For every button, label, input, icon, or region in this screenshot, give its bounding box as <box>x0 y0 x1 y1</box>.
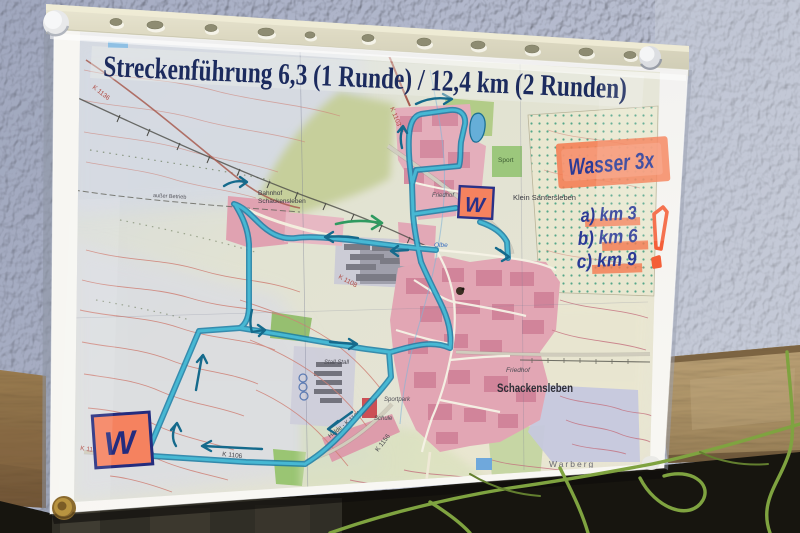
svg-text:Friedhof: Friedhof <box>506 367 531 374</box>
svg-text:Bahnhof: Bahnhof <box>258 190 282 197</box>
svg-text:W: W <box>464 193 487 217</box>
svg-text:Friedhof: Friedhof <box>432 193 455 199</box>
svg-text:Warberg: Warberg <box>549 459 595 469</box>
svg-text:Sport: Sport <box>498 157 514 164</box>
svg-text:Schackensleben: Schackensleben <box>497 381 573 395</box>
svg-text:Sportpark: Sportpark <box>384 397 411 403</box>
svg-text:Schackensleben: Schackensleben <box>258 198 306 205</box>
svg-text:Stall Stall: Stall Stall <box>324 360 350 366</box>
svg-text:c) km 9: c) km 9 <box>576 249 637 273</box>
svg-text:Klein Santersleben: Klein Santersleben <box>513 193 576 202</box>
svg-text:Schule: Schule <box>374 416 393 422</box>
